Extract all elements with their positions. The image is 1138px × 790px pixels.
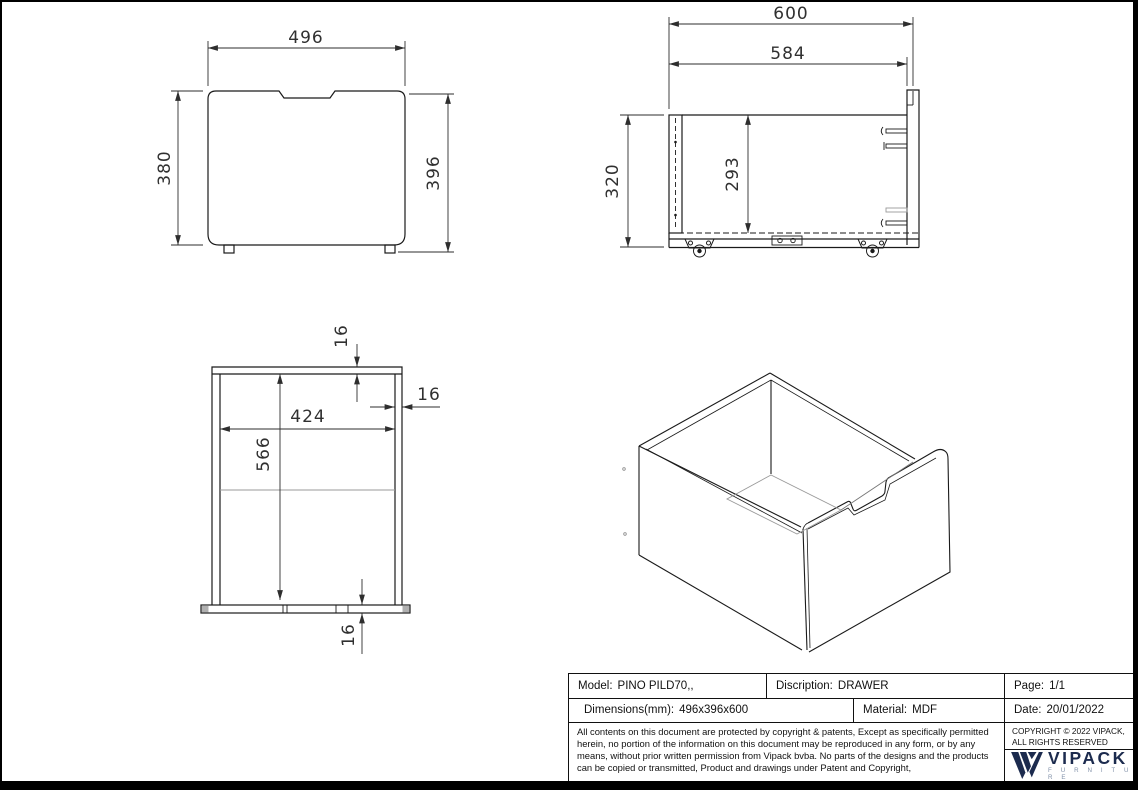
date-label: Date:	[1014, 704, 1042, 716]
drawing-sheet: 496 380 396	[0, 0, 1138, 790]
dim-side-depth-inner: 584	[770, 44, 805, 64]
dim-top-front-thickness: 16	[339, 623, 359, 647]
front-panel-profile	[907, 90, 919, 245]
dim-front-height-right: 396	[424, 155, 444, 190]
material-cell: Material: MDF	[854, 699, 1005, 723]
page-cell: Page: 1/1	[1005, 674, 1133, 698]
vipack-logo: VIPACK F U R N I T U R E	[1005, 750, 1133, 781]
model-cell: Model: PINO PILD70,,	[569, 674, 767, 698]
brand-subtitle: F U R N I T U R E	[1048, 767, 1133, 781]
front-strip	[201, 605, 410, 613]
dimensions-label: Dimensions(mm):	[584, 704, 674, 716]
copyright-line2: ALL RIGHTS RESERVED	[1012, 737, 1133, 748]
page-label: Page:	[1014, 680, 1044, 692]
description-value: DRAWER	[838, 680, 889, 692]
technical-drawing: 496 380 396	[2, 2, 1133, 781]
material-value: MDF	[912, 704, 937, 716]
page-value: 1/1	[1049, 680, 1065, 692]
dim-top-inner-width: 424	[290, 407, 325, 427]
dimensions-cell: Dimensions(mm): 496x396x600	[569, 699, 854, 723]
dim-front-height-left: 380	[155, 150, 175, 185]
dim-side-height: 320	[603, 163, 623, 198]
center-bracket	[772, 236, 802, 245]
caster-right	[858, 239, 887, 257]
dim-top-back-thickness: 16	[332, 324, 352, 348]
description-label: Discription:	[776, 680, 833, 692]
date-cell: Date: 20/01/2022	[1005, 699, 1133, 723]
copyright-notice: COPYRIGHT © 2022 VIPACK, ALL RIGHTS RESE…	[1005, 723, 1133, 750]
model-value: PINO PILD70,,	[618, 680, 694, 692]
date-value: 20/01/2022	[1047, 704, 1105, 716]
side-view: 600 584 320 293	[603, 4, 919, 257]
caster-left	[685, 239, 714, 257]
material-label: Material:	[863, 704, 907, 716]
top-view: 16 16 424 566 16	[201, 324, 441, 654]
dim-top-inner-depth: 566	[254, 436, 274, 471]
model-label: Model:	[578, 680, 613, 692]
brand-name: VIPACK	[1048, 750, 1133, 766]
copyright-disclaimer: All contents on this document are protec…	[569, 723, 1005, 781]
vipack-logo-icon	[1011, 752, 1043, 779]
dim-top-side-thickness: 16	[417, 385, 441, 405]
front-panel-outline	[208, 91, 405, 245]
screws	[881, 127, 907, 227]
description-cell: Discription: DRAWER	[767, 674, 1005, 698]
dim-front-width: 496	[288, 28, 323, 48]
front-foot-left	[224, 245, 234, 253]
title-block: Model: PINO PILD70,, Discription: DRAWER…	[568, 673, 1133, 781]
isometric-view	[623, 373, 950, 652]
copyright-line1: COPYRIGHT © 2022 VIPACK,	[1012, 726, 1133, 737]
dim-side-inner-height: 293	[723, 156, 743, 191]
dim-side-depth-total: 600	[773, 4, 808, 24]
front-view: 496 380 396	[155, 28, 454, 253]
dimensions-value: 496x396x600	[679, 704, 748, 716]
front-foot-right	[385, 245, 395, 253]
